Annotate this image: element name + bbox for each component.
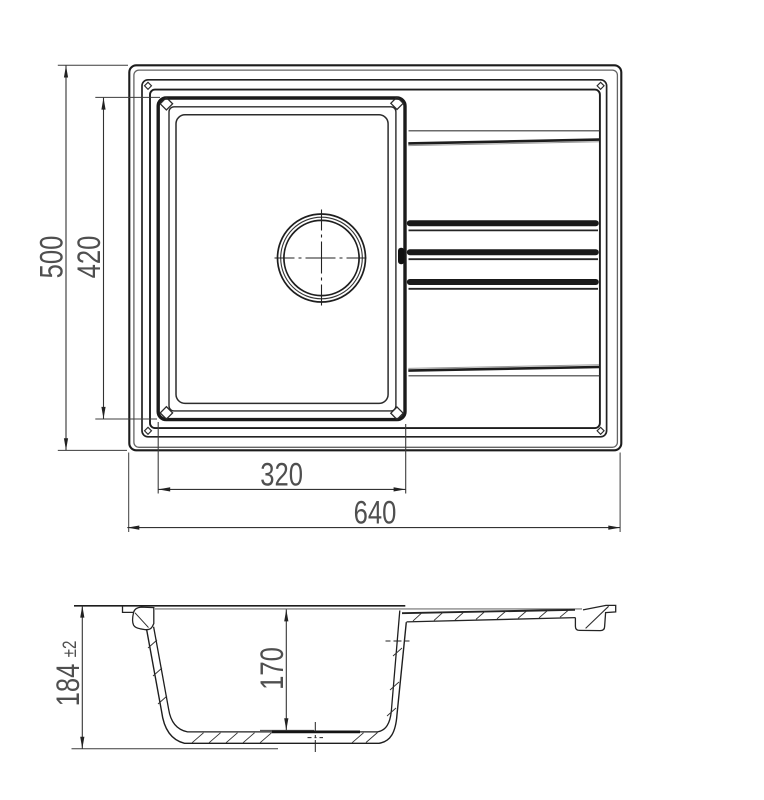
svg-text:640: 640 [354,496,397,531]
svg-text:320: 320 [260,458,303,493]
svg-text:170: 170 [256,647,291,690]
svg-text:500: 500 [35,236,70,279]
svg-text:±2: ±2 [59,641,81,658]
svg-text:420: 420 [72,236,107,279]
svg-text:184: 184 [51,664,86,707]
